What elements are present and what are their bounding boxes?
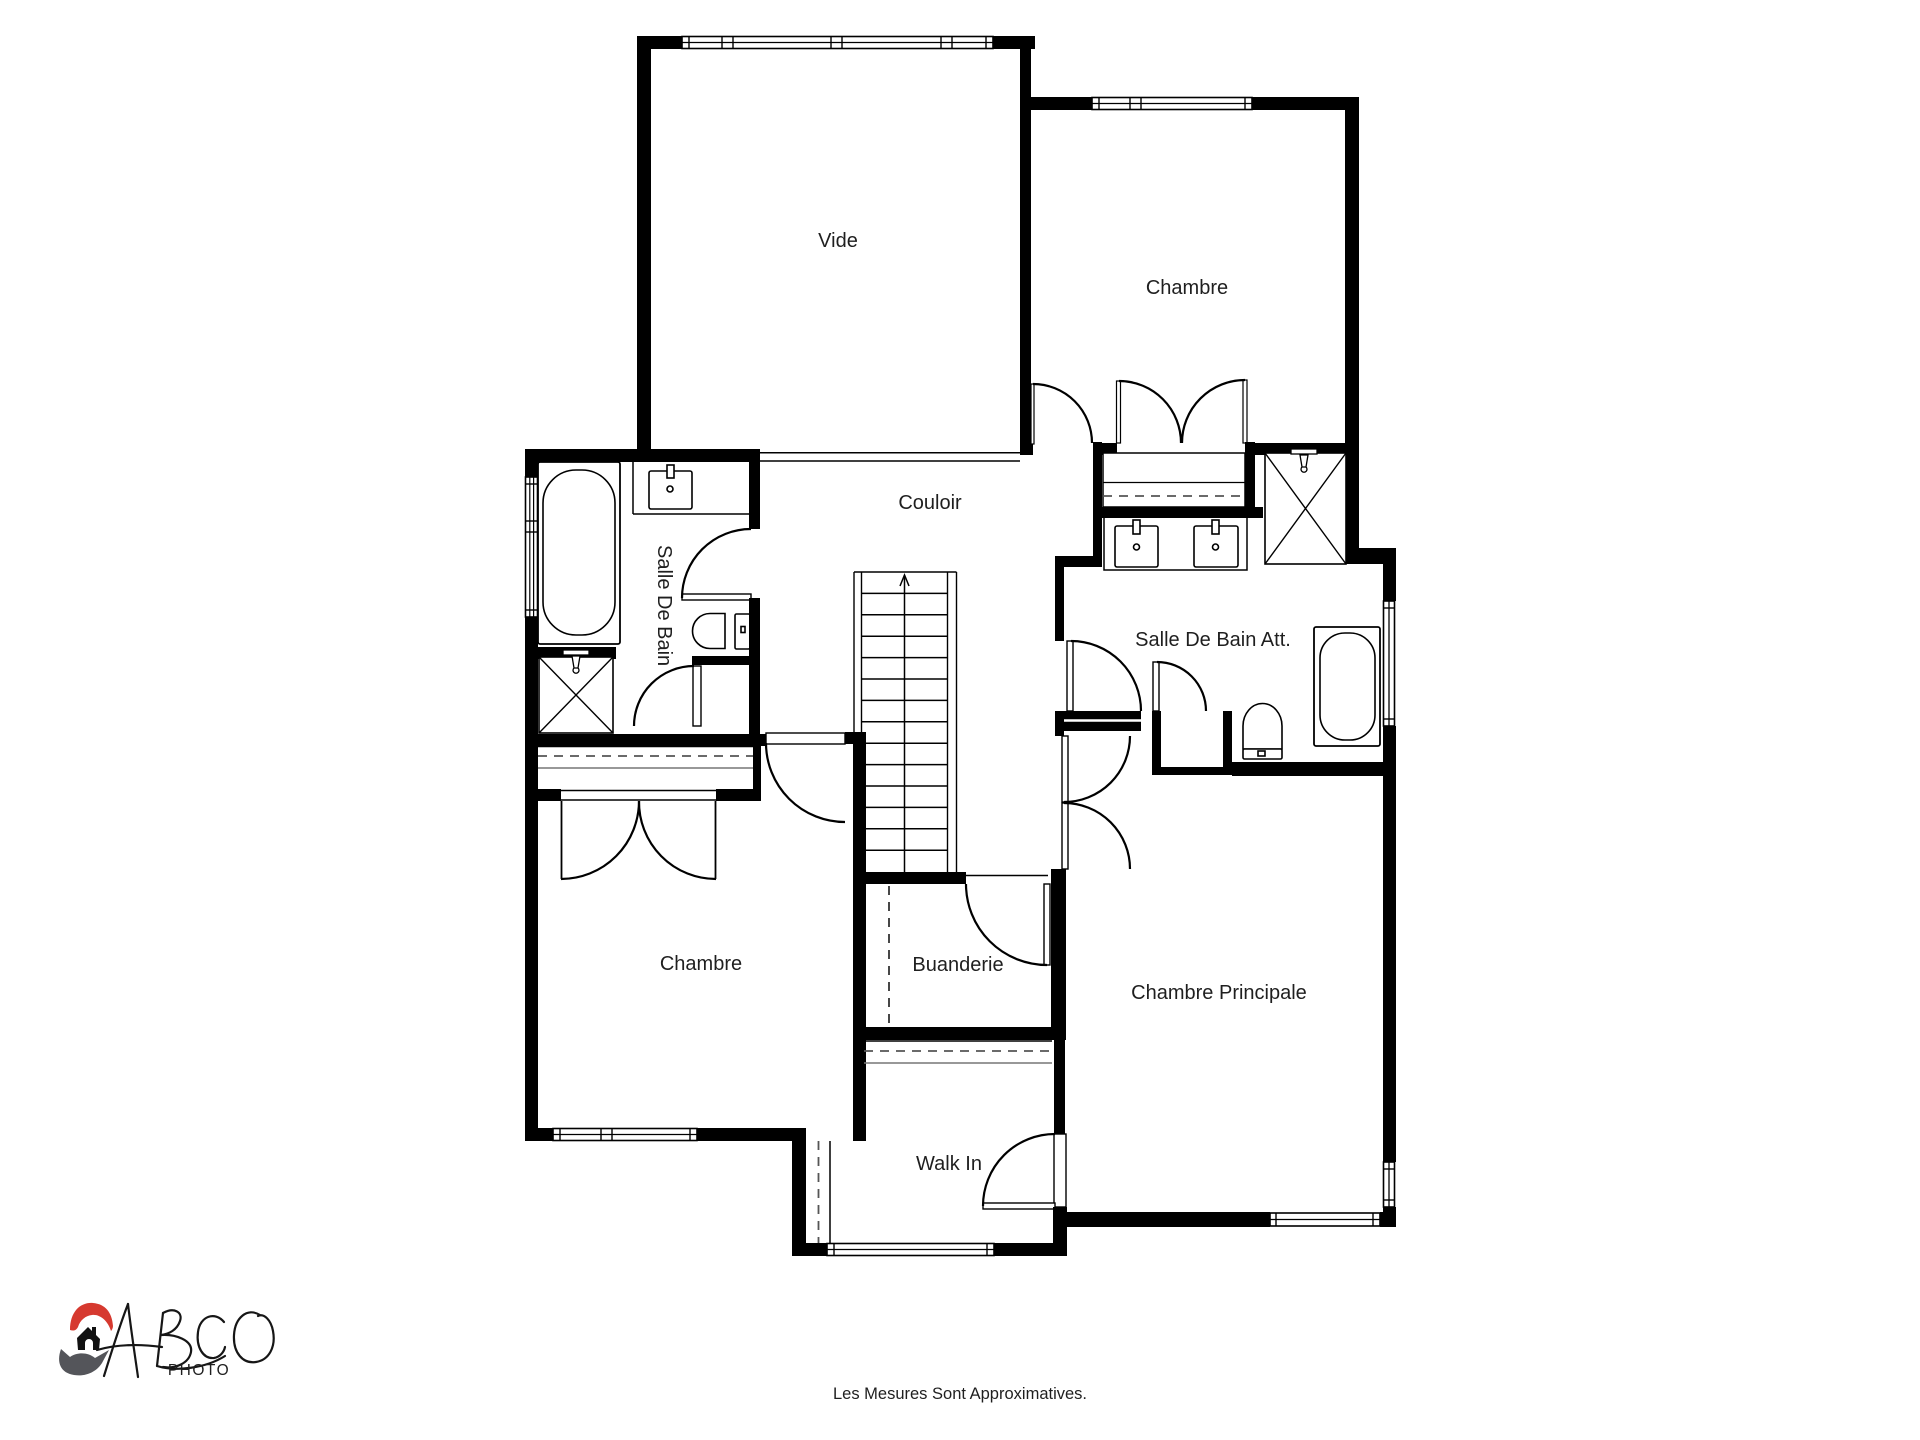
svg-text:Les Mesures Sont Approximative: Les Mesures Sont Approximatives. bbox=[833, 1385, 1087, 1403]
svg-text:Vide: Vide bbox=[818, 230, 858, 252]
svg-text:Salle De Bain Att.: Salle De Bain Att. bbox=[1135, 629, 1291, 651]
svg-text:Couloir: Couloir bbox=[898, 492, 962, 514]
svg-text:Walk In: Walk In bbox=[916, 1153, 982, 1175]
svg-text:Chambre: Chambre bbox=[1146, 277, 1228, 299]
svg-text:Buanderie: Buanderie bbox=[912, 954, 1003, 976]
svg-text:Salle De Bain: Salle De Bain bbox=[653, 545, 675, 666]
svg-text:Chambre: Chambre bbox=[660, 953, 742, 975]
svg-text:Chambre Principale: Chambre Principale bbox=[1131, 982, 1307, 1004]
svg-text:PHOTO: PHOTO bbox=[168, 1362, 230, 1379]
